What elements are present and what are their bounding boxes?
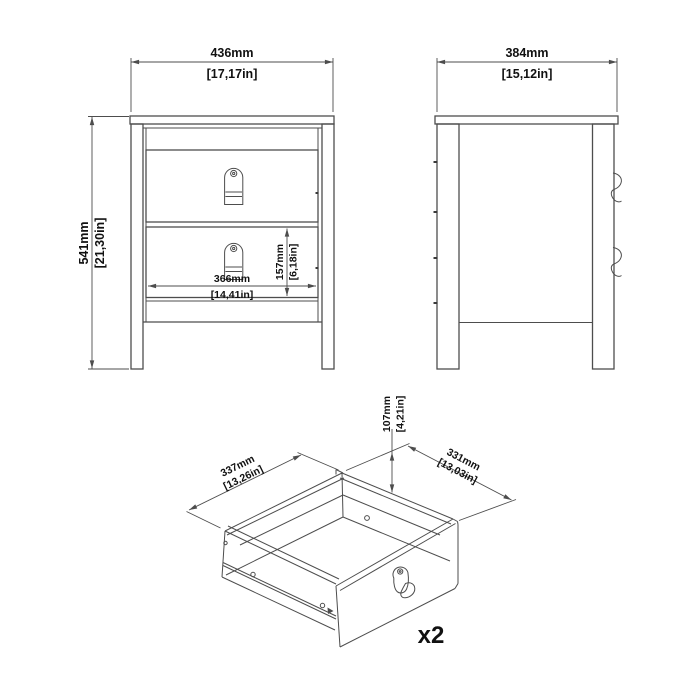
rail-screw-icon — [251, 572, 255, 576]
drawer-slide-rail — [223, 563, 336, 617]
drawer-height-mm: 157mm — [274, 244, 286, 280]
drawer-bottom-exterior-right — [343, 517, 450, 561]
front-width-in: [17,17in] — [207, 67, 258, 81]
drawer-bottom-exterior-left — [226, 517, 343, 575]
drawer-bottom-hole — [365, 516, 370, 521]
furniture-dimension-drawing: 436mm [17,17in] 541mm [21,30in] — [0, 0, 700, 700]
front-width-dimension: 436mm [17,17in] — [131, 46, 333, 112]
front-left-leg — [131, 124, 143, 369]
rail-screw-icon — [320, 603, 324, 607]
drawer-width-in: [14,41in] — [211, 289, 254, 301]
drawer-rim-back-right — [342, 473, 453, 519]
front-height-mm: 541mm — [77, 221, 91, 264]
handle-screw-icon — [398, 569, 403, 574]
drawer-height-in: [6,18in] — [288, 244, 300, 281]
front-width-mm: 436mm — [210, 46, 253, 60]
technical-drawing-page: 436mm [17,17in] 541mm [21,30in] — [0, 0, 700, 700]
side-depth-dimension: 384mm [15,12in] — [437, 46, 617, 112]
drawer-handle-top — [225, 168, 243, 204]
side-depth-mm: 384mm — [505, 46, 548, 60]
side-depth-in: [15,12in] — [502, 67, 553, 81]
drawer-width-mm: 366mm — [214, 273, 250, 285]
handle-screw-icon — [231, 170, 237, 176]
front-right-leg — [322, 124, 334, 369]
drawer-rim-front-left — [225, 531, 336, 584]
drawer-bottom-interior-left — [240, 495, 343, 545]
drawer-iso-height-dimension: 107mm [4,21in] — [381, 396, 407, 493]
side-top-panel — [435, 116, 618, 124]
drawer-iso-width-dimension: 337mm [13,26in] — [187, 452, 339, 528]
drawer-isometric-view: 337mm [13,26in] 331mm [13,03in] 107mm [4… — [187, 396, 517, 649]
iso-height-in: [4,21in] — [395, 396, 407, 433]
drawer-bottom-interior-right — [343, 495, 440, 535]
side-handle-hook-top — [611, 173, 621, 202]
side-handle-hook-bottom — [611, 248, 621, 277]
front-height-in: [21,30in] — [93, 218, 107, 269]
drawer-pull-handle — [393, 567, 415, 598]
drawer-front-top — [146, 150, 318, 222]
front-view: 436mm [17,17in] 541mm [21,30in] — [77, 46, 334, 369]
front-top-panel — [130, 116, 334, 124]
side-front-leg — [593, 124, 615, 369]
iso-height-mm: 107mm — [381, 396, 393, 432]
side-view: 384mm [15,12in] — [434, 46, 622, 369]
drawer-iso-depth-dimension: 331mm [13,03in] — [346, 444, 516, 521]
front-height-dimension: 541mm [21,30in] — [77, 117, 129, 370]
side-panel-front-edge — [222, 531, 225, 577]
side-panel-bottom-edge — [222, 577, 335, 630]
side-back-leg — [437, 124, 459, 369]
handle-screw-icon — [231, 245, 237, 251]
quantity-label: x2 — [418, 622, 445, 649]
